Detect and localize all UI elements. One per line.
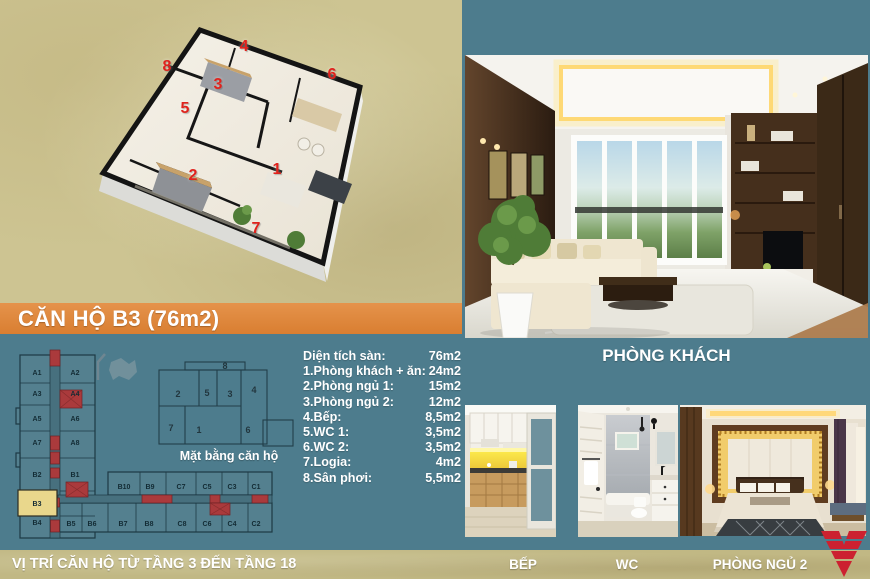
- spec-row: 8.Sân phơi:5,5m2: [303, 471, 461, 486]
- spec-label: 4.Bếp:: [303, 410, 342, 425]
- spec-value: 15m2: [429, 379, 461, 394]
- brochure-page: 12345678 CĂN HỘ B3 (76m2): [0, 0, 870, 579]
- room-number-2d-6: 6: [245, 425, 250, 435]
- spec-value: 76m2: [429, 349, 461, 364]
- unit-label-b8: B8: [145, 521, 154, 528]
- unit-label-a1: A1: [33, 370, 42, 377]
- spec-row: 3.Phòng ngủ 2:12m2: [303, 395, 461, 410]
- unit-label-b4: B4: [33, 520, 42, 527]
- room-number-3d-6: 6: [328, 66, 337, 84]
- room-number-2d-3: 3: [227, 389, 232, 399]
- room-number-3d-4: 4: [240, 38, 249, 56]
- unit-label-b1: B1: [71, 472, 80, 479]
- caption-wc: WC: [616, 550, 639, 579]
- unit-label-a7: A7: [33, 440, 42, 447]
- spec-value: 3,5m2: [425, 440, 461, 455]
- unit-label-a8: A8: [71, 440, 80, 447]
- spec-label: 7.Logia:: [303, 455, 351, 470]
- title-banner: CĂN HỘ B3 (76m2): [0, 303, 462, 334]
- room-number-3d-3: 3: [214, 76, 223, 94]
- unit-label-b10: B10: [118, 484, 131, 491]
- room-number-3d-8: 8: [163, 58, 172, 76]
- unit-label-b3: B3: [33, 501, 42, 508]
- page-title: CĂN HỘ B3 (76m2): [0, 306, 219, 332]
- room-number-2d-8: 8: [222, 361, 227, 371]
- living-room-photo: [465, 55, 868, 338]
- floor-plan-3d: 12345678: [90, 10, 390, 295]
- unit-label-b7: B7: [119, 521, 128, 528]
- wc-photo: [578, 405, 678, 537]
- room-number-2d-4: 4: [251, 385, 256, 395]
- unit-label-b2: B2: [33, 472, 42, 479]
- unit-label-c8: C8: [178, 521, 187, 528]
- spec-value: 8,5m2: [425, 410, 461, 425]
- spec-label: 1.Phòng khách + ăn:: [303, 364, 426, 379]
- unit-plan-2d: 12345678: [155, 358, 300, 453]
- bedroom-photo: [680, 405, 866, 536]
- unit-label-a5: A5: [33, 416, 42, 423]
- caption-living-room: PHÒNG KHÁCH: [465, 346, 868, 366]
- spec-value: 3,5m2: [425, 425, 461, 440]
- unit-label-b6: B6: [88, 521, 97, 528]
- room-number-3d-7: 7: [252, 220, 261, 238]
- spec-row: 6.WC 2:3,5m2: [303, 440, 461, 455]
- footer-note: VỊ TRÍ CĂN HỘ TỪ TẦNG 3 ĐẾN TẦNG 18: [12, 550, 296, 579]
- room-number-2d-2: 2: [175, 389, 180, 399]
- spec-value: 24m2: [429, 364, 461, 379]
- spec-value: 4m2: [436, 455, 461, 470]
- room-number-3d-1: 1: [273, 161, 282, 179]
- unit-label-c6: C6: [203, 521, 212, 528]
- specs-list: Diện tích sàn:76m21.Phòng khách + ăn:24m…: [303, 349, 461, 486]
- spec-label: 5.WC 1:: [303, 425, 349, 440]
- room-number-3d-2: 2: [189, 167, 198, 185]
- room-number-3d-5: 5: [181, 100, 190, 118]
- spec-label: 8.Sân phơi:: [303, 471, 372, 486]
- spec-value: 5,5m2: [425, 471, 461, 486]
- spec-row: 1.Phòng khách + ăn:24m2: [303, 364, 461, 379]
- spec-label: 6.WC 2:: [303, 440, 349, 455]
- unit-label-c7: C7: [177, 484, 186, 491]
- kitchen-photo: [465, 405, 556, 537]
- spec-row: 5.WC 1:3,5m2: [303, 425, 461, 440]
- unit-plan-caption: Mặt bằng căn hộ: [158, 449, 300, 463]
- caption-bedroom-2: PHÒNG NGỦ 2: [713, 550, 808, 579]
- unit-label-c5: C5: [203, 484, 212, 491]
- brand-v-logo-icon: [818, 529, 870, 579]
- unit-label-c4: C4: [228, 521, 237, 528]
- spec-label: Diện tích sàn:: [303, 349, 386, 364]
- room-number-2d-1: 1: [196, 425, 201, 435]
- unit-label-c3: C3: [228, 484, 237, 491]
- spec-row: 2.Phòng ngủ 1:15m2: [303, 379, 461, 394]
- unit-label-a6: A6: [71, 416, 80, 423]
- spec-label: 2.Phòng ngủ 1:: [303, 379, 394, 394]
- spec-row: 7.Logia:4m2: [303, 455, 461, 470]
- unit-label-c1: C1: [252, 484, 261, 491]
- unit-label-a3: A3: [33, 391, 42, 398]
- unit-label-a2: A2: [71, 370, 80, 377]
- unit-label-a4: A4: [71, 391, 80, 398]
- spec-row: 4.Bếp:8,5m2: [303, 410, 461, 425]
- caption-kitchen: BẾP: [509, 550, 537, 579]
- spec-row: Diện tích sàn:76m2: [303, 349, 461, 364]
- room-number-2d-5: 5: [204, 388, 209, 398]
- unit-label-c2: C2: [252, 521, 261, 528]
- spec-value: 12m2: [429, 395, 461, 410]
- unit-label-b9: B9: [146, 484, 155, 491]
- room-number-2d-7: 7: [168, 423, 173, 433]
- unit-label-b5: B5: [67, 521, 76, 528]
- spec-label: 3.Phòng ngủ 2:: [303, 395, 394, 410]
